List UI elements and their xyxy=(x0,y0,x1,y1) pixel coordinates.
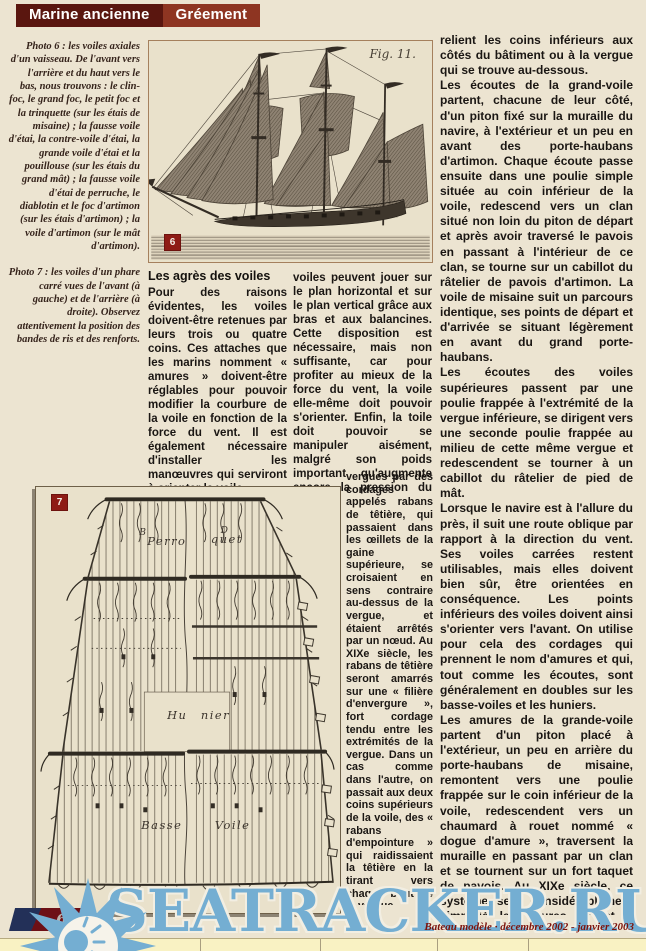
sail-diagram: B D Perro quet Hu nier Basse Voile xyxy=(36,487,340,913)
article-heading: Les agrès des voiles xyxy=(148,269,287,284)
diagram-label-hunier-right: nier xyxy=(201,708,230,722)
photo-number-badge-6: 6 xyxy=(164,234,181,251)
paragraph: Pour des raisons évidentes, les voiles d… xyxy=(148,286,287,496)
photo-number-badge-7: 7 xyxy=(51,494,68,511)
paragraph: voiles peuvent jouer sur le plan horizon… xyxy=(293,271,432,499)
diagram-label-perroquet-right: quet xyxy=(211,532,243,546)
diagram-label-bassevoile-right: Voile xyxy=(215,818,251,832)
column-right: relient les coins inférieurs aux côtés d… xyxy=(440,33,633,915)
header-bar: Marine ancienne Gréement xyxy=(16,4,260,27)
paragraph: Lorsque le navire est à l'allure du près… xyxy=(440,501,633,713)
diagram-label-hunier-left: Hu xyxy=(166,708,187,722)
header-category: Marine ancienne xyxy=(16,4,163,27)
diagram-label-perroquet-left: Perro xyxy=(146,534,186,548)
ship-engraving xyxy=(149,41,432,262)
watermark-starburst xyxy=(0,876,188,951)
caption-photo6: Photo 6 : les voiles axiales d'un vaisse… xyxy=(8,40,140,253)
column-middle: voiles peuvent jouer sur le plan horizon… xyxy=(293,271,432,499)
paragraph: vergues par des cordages appelés rabans … xyxy=(346,471,433,905)
photo-captions: Photo 6 : les voiles axiales d'un vaisse… xyxy=(8,40,140,359)
caption-photo7: Photo 7 : les voiles d'un phare carré vu… xyxy=(8,266,140,346)
diagram-letter-left: B xyxy=(138,528,146,538)
magazine-page: Marine ancienne Gréement Photo 6 : les v… xyxy=(0,0,646,951)
sails xyxy=(155,51,428,209)
header-section: Gréement xyxy=(163,4,261,27)
paragraph: Les écoutes des voiles supérieures passe… xyxy=(440,365,633,501)
paragraph: relient les coins inférieurs aux côtés d… xyxy=(440,33,633,78)
ship-figure: Fig. 11. 6 xyxy=(148,40,433,263)
diagram-label-bassevoile-left: Basse xyxy=(140,818,182,832)
paragraph: Les écoutes de la grand-voile partent, c… xyxy=(440,78,633,365)
column-narrow: vergues par des cordages appelés rabans … xyxy=(346,471,433,905)
sail-diagram-figure: B D Perro quet Hu nier Basse Voile 7 xyxy=(35,486,341,914)
fig-label: Fig. 11. xyxy=(369,47,416,61)
column-left: Les agrès des voiles Pour des raisons év… xyxy=(148,269,287,499)
magazine-footer: Bateau modèle · décembre 2002 - janvier … xyxy=(424,921,634,933)
